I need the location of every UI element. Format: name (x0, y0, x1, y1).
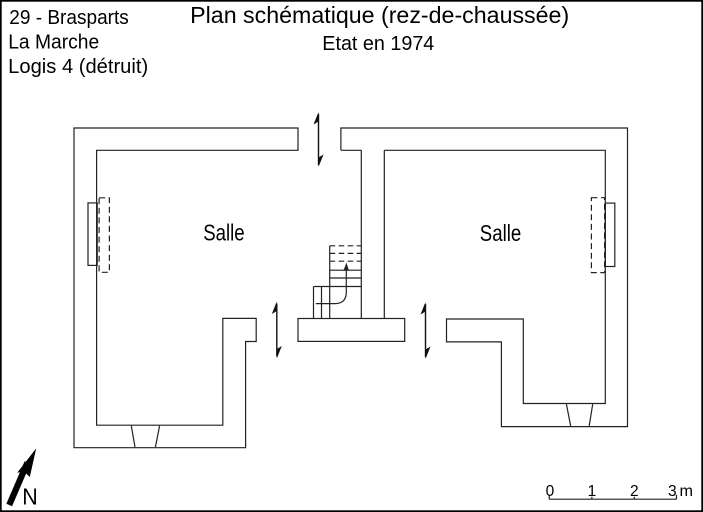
svg-text:Etat en 1974: Etat en 1974 (322, 33, 434, 55)
svg-text:m: m (680, 483, 694, 500)
svg-text:N: N (22, 484, 38, 510)
svg-text:1: 1 (588, 483, 597, 500)
svg-text:29 - Brasparts: 29 - Brasparts (9, 7, 129, 29)
svg-text:0: 0 (546, 483, 555, 500)
svg-text:2: 2 (630, 483, 639, 500)
svg-text:Plan schématique (rez-de-chaus: Plan schématique (rez-de-chaussée) (190, 2, 569, 28)
svg-text:Salle: Salle (203, 220, 244, 246)
svg-text:La Marche: La Marche (8, 32, 99, 54)
svg-text:Salle: Salle (480, 220, 521, 246)
svg-text:Logis 4 (détruit): Logis 4 (détruit) (8, 56, 148, 78)
svg-text:3: 3 (668, 483, 677, 500)
